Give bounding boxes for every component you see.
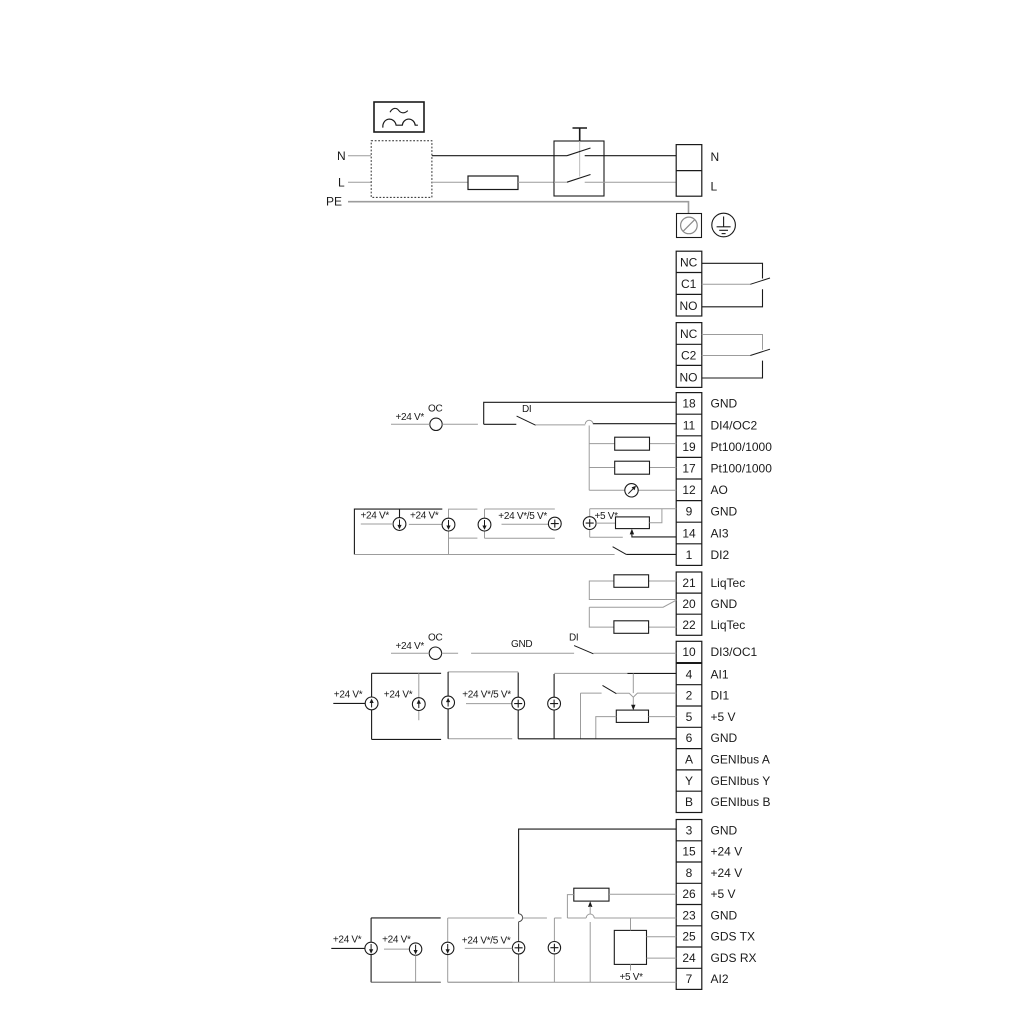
svg-text:23: 23 bbox=[682, 908, 696, 922]
svg-text:DI: DI bbox=[522, 404, 531, 415]
svg-text:GENIbus Y: GENIbus Y bbox=[711, 774, 771, 788]
svg-text:NO: NO bbox=[680, 299, 698, 313]
svg-text:NO: NO bbox=[680, 370, 698, 384]
svg-text:DI4/OC2: DI4/OC2 bbox=[711, 418, 758, 432]
svg-text:C2: C2 bbox=[681, 349, 697, 363]
svg-text:24: 24 bbox=[682, 951, 696, 965]
svg-text:GND: GND bbox=[711, 597, 738, 611]
svg-text:N: N bbox=[711, 150, 720, 164]
svg-text:DI3/OC1: DI3/OC1 bbox=[711, 645, 758, 659]
svg-text:14: 14 bbox=[682, 526, 696, 540]
svg-text:+24 V*/5 V*: +24 V*/5 V* bbox=[462, 690, 511, 701]
svg-text:+24 V*: +24 V* bbox=[333, 935, 362, 946]
svg-text:GND: GND bbox=[711, 908, 738, 922]
svg-text:+24 V: +24 V bbox=[711, 845, 743, 859]
svg-text:GENIbus A: GENIbus A bbox=[711, 753, 770, 767]
svg-text:NC: NC bbox=[680, 327, 698, 341]
svg-text:DI2: DI2 bbox=[711, 548, 730, 562]
svg-text:+24 V*/5 V*: +24 V*/5 V* bbox=[462, 936, 511, 947]
svg-text:22: 22 bbox=[682, 618, 696, 632]
svg-text:GND: GND bbox=[711, 397, 738, 411]
svg-text:OC: OC bbox=[428, 404, 442, 415]
svg-text:+24 V*: +24 V* bbox=[396, 412, 425, 423]
svg-text:GDS RX: GDS RX bbox=[711, 951, 757, 965]
svg-text:+24 V*: +24 V* bbox=[361, 511, 390, 522]
svg-text:Y: Y bbox=[685, 774, 693, 788]
svg-text:8: 8 bbox=[686, 866, 693, 880]
svg-text:L: L bbox=[711, 180, 718, 194]
svg-text:GENIbus B: GENIbus B bbox=[711, 795, 771, 809]
svg-text:+5 V*: +5 V* bbox=[620, 972, 644, 983]
svg-text:OC: OC bbox=[428, 632, 442, 643]
svg-text:15: 15 bbox=[682, 845, 696, 859]
svg-text:18: 18 bbox=[682, 397, 696, 411]
svg-text:GDS TX: GDS TX bbox=[711, 930, 755, 944]
svg-text:3: 3 bbox=[686, 823, 693, 837]
svg-text:DI1: DI1 bbox=[711, 689, 730, 703]
svg-text:19: 19 bbox=[682, 440, 696, 454]
svg-text:LiqTec: LiqTec bbox=[711, 576, 746, 590]
svg-text:12: 12 bbox=[682, 483, 696, 497]
svg-text:10: 10 bbox=[682, 645, 696, 659]
svg-text:L: L bbox=[338, 176, 345, 190]
svg-text:AO: AO bbox=[711, 483, 728, 497]
svg-text:1: 1 bbox=[686, 548, 693, 562]
svg-text:+24 V*: +24 V* bbox=[382, 935, 411, 946]
svg-text:+24 V*: +24 V* bbox=[384, 690, 413, 701]
svg-text:N: N bbox=[337, 149, 346, 163]
svg-text:+24 V*: +24 V* bbox=[410, 511, 439, 522]
svg-text:25: 25 bbox=[682, 930, 696, 944]
svg-text:C1: C1 bbox=[681, 277, 697, 291]
svg-text:LiqTec: LiqTec bbox=[711, 618, 746, 632]
svg-text:A: A bbox=[685, 753, 693, 767]
svg-text:4: 4 bbox=[686, 667, 693, 681]
svg-text:+24 V*: +24 V* bbox=[334, 690, 363, 701]
svg-text:PE: PE bbox=[326, 195, 342, 209]
svg-text:GND: GND bbox=[711, 823, 738, 837]
svg-text:Pt100/1000: Pt100/1000 bbox=[711, 440, 773, 454]
svg-text:6: 6 bbox=[686, 731, 693, 745]
svg-text:GND: GND bbox=[511, 639, 532, 650]
svg-text:AI3: AI3 bbox=[711, 526, 729, 540]
svg-text:+24 V*: +24 V* bbox=[396, 641, 425, 652]
svg-text:B: B bbox=[685, 795, 693, 809]
svg-text:7: 7 bbox=[686, 972, 693, 986]
svg-text:+24 V: +24 V bbox=[711, 866, 743, 880]
svg-text:GND: GND bbox=[711, 731, 738, 745]
svg-text:9: 9 bbox=[686, 505, 693, 519]
svg-text:17: 17 bbox=[682, 462, 696, 476]
svg-text:Pt100/1000: Pt100/1000 bbox=[711, 462, 773, 476]
svg-text:20: 20 bbox=[682, 597, 696, 611]
svg-text:AI1: AI1 bbox=[711, 667, 729, 681]
svg-text:GND: GND bbox=[711, 505, 738, 519]
svg-text:5: 5 bbox=[686, 710, 693, 724]
svg-text:21: 21 bbox=[682, 576, 696, 590]
svg-text:+5 V: +5 V bbox=[711, 710, 736, 724]
svg-text:11: 11 bbox=[683, 418, 696, 432]
svg-text:AI2: AI2 bbox=[711, 972, 729, 986]
svg-text:26: 26 bbox=[682, 887, 696, 901]
svg-text:+5 V: +5 V bbox=[711, 887, 736, 901]
svg-text:+5 V*: +5 V* bbox=[595, 511, 619, 522]
svg-text:2: 2 bbox=[686, 689, 693, 703]
svg-text:DI: DI bbox=[569, 632, 578, 643]
svg-text:+24 V*/5 V*: +24 V*/5 V* bbox=[498, 511, 547, 522]
svg-text:NC: NC bbox=[680, 255, 698, 269]
